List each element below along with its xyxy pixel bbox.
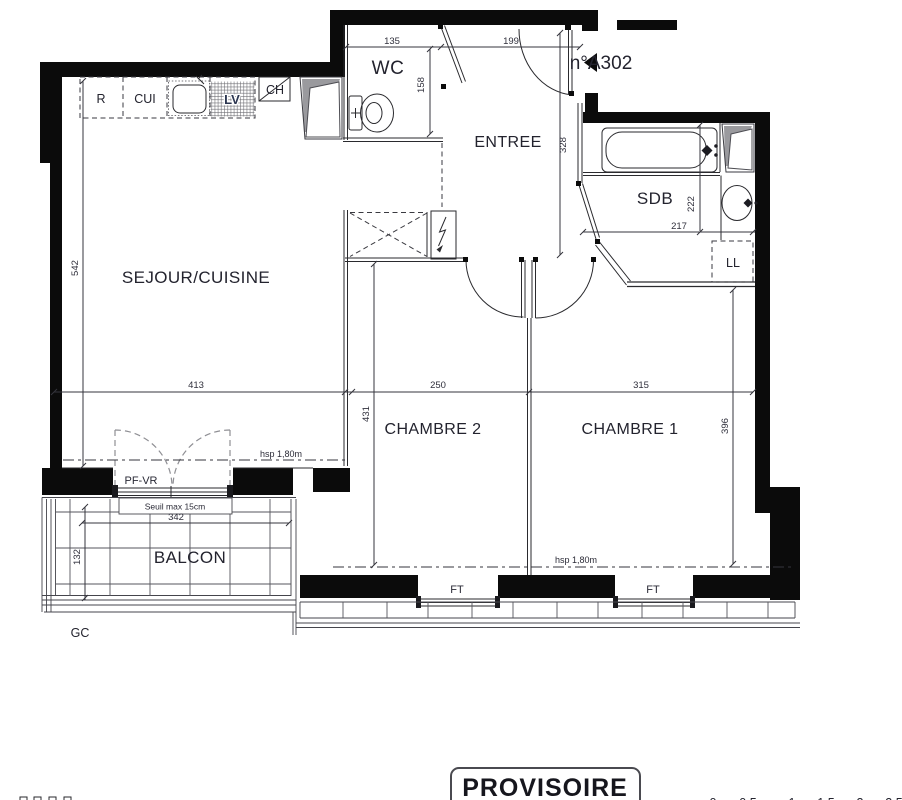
dim-sdb-depth: 222 bbox=[686, 196, 697, 212]
room-label-sejour: SEJOUR/CUISINE bbox=[122, 268, 270, 287]
dim-sejour-width: 413 bbox=[188, 380, 204, 391]
dishwasher-label: LV bbox=[224, 92, 240, 107]
dim-entree-width: 199 bbox=[503, 36, 519, 47]
sdb-door-leaf bbox=[722, 124, 754, 172]
room-label-ll: LL bbox=[726, 256, 740, 270]
scale-mark-05: 0,5 bbox=[739, 796, 756, 800]
stamp-label: PROVISOIRE bbox=[462, 774, 628, 800]
room-label-wc: WC bbox=[372, 58, 405, 79]
dim-sdb-width: 217 bbox=[671, 221, 687, 232]
dim-balcon-depth: 132 bbox=[72, 549, 83, 565]
unit-marker: n°A302 bbox=[570, 53, 633, 74]
room-label-chambre1: CHAMBRE 1 bbox=[582, 421, 679, 438]
dim-chambre1-depth: 396 bbox=[720, 418, 731, 434]
dim-entree-depth: 328 bbox=[558, 137, 569, 153]
hsp-sejour-label: hsp 1,80m bbox=[260, 449, 302, 459]
dim-chambre1-width: 315 bbox=[633, 380, 649, 391]
stamp-provisoire: PROVISOIRE bbox=[451, 768, 640, 800]
boiler-label: CH bbox=[266, 83, 284, 97]
scale-mark-2: 2 bbox=[857, 796, 864, 800]
dim-wc-depth: 158 bbox=[416, 77, 427, 93]
gc-label: GC bbox=[71, 626, 90, 640]
seuil-label: Seuil max 15cm bbox=[145, 502, 205, 512]
room-label-sdb: SDB bbox=[637, 189, 673, 208]
scale-mark-1: 1 bbox=[789, 796, 796, 800]
dim-chambre2-depth: 431 bbox=[361, 406, 372, 422]
dim-balcon-width: 342 bbox=[168, 512, 184, 523]
scale-mark-25: 2,5 bbox=[885, 796, 902, 800]
room-label-balcon: BALCON bbox=[154, 548, 226, 567]
fridge-label: R bbox=[96, 92, 105, 106]
floor-plan: n°A302 WC ENTREE SDB LL SEJOUR/CUISINE C… bbox=[0, 0, 902, 800]
hob-label: CUI bbox=[134, 92, 156, 106]
room-label-chambre2: CHAMBRE 2 bbox=[385, 421, 482, 438]
dim-wc-width: 135 bbox=[384, 36, 400, 47]
dim-sejour-depth: 542 bbox=[70, 260, 81, 276]
hsp-chambres-label: hsp 1,80m bbox=[555, 555, 597, 565]
ft2-label: FT bbox=[646, 584, 660, 596]
scale-mark-0: 0 bbox=[710, 796, 717, 800]
room-label-entree: ENTREE bbox=[474, 134, 541, 151]
scale-mark-15: 1,5 bbox=[817, 796, 834, 800]
unit-label: n°A302 bbox=[570, 53, 633, 74]
pf-vr-label: PF-VR bbox=[125, 475, 158, 487]
kitchen-door-leaf bbox=[300, 77, 342, 139]
ft1-label: FT bbox=[450, 584, 464, 596]
dim-chambre2-width: 250 bbox=[430, 380, 446, 391]
